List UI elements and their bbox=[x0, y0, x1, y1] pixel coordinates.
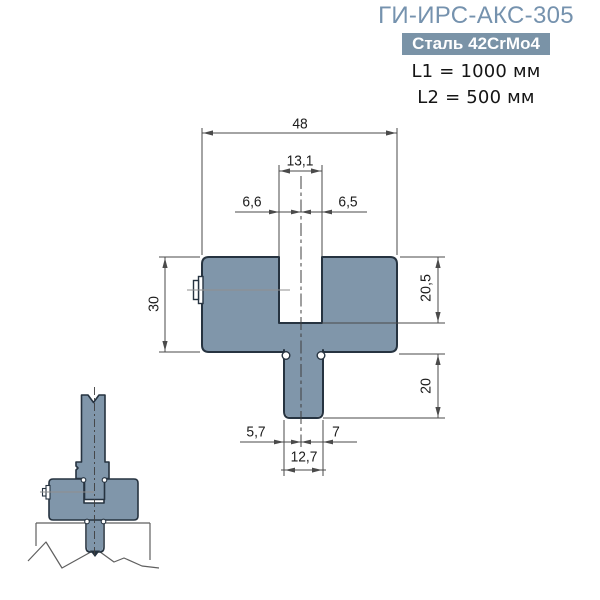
adapter-body bbox=[202, 257, 397, 352]
header: ГИ-ИРС-АКС-305 Сталь 42CrMo4 L1 = 1000 м… bbox=[376, 2, 576, 111]
dim-tang-height-label: 20 bbox=[418, 378, 435, 394]
dim-body-height-label: 30 bbox=[146, 296, 163, 312]
dim-tang-width-label: 12,7 bbox=[291, 449, 318, 466]
thumb-relief-notch bbox=[101, 519, 106, 524]
thumb-relief-notch bbox=[85, 519, 90, 524]
dim-center-to-slot-right-label: 6,5 bbox=[338, 194, 357, 211]
thumb-stem-tip bbox=[90, 551, 100, 558]
dim-slot-width-label: 13,1 bbox=[287, 153, 314, 170]
dim-tang-left-label: 5,7 bbox=[246, 424, 265, 441]
dim-slot-depth-label: 20,5 bbox=[418, 274, 435, 302]
dim-total-width-label: 48 bbox=[292, 116, 307, 133]
assembly-thumbnail bbox=[28, 387, 159, 568]
thumb-collar-notch bbox=[81, 478, 86, 483]
relief-notch-right bbox=[317, 352, 325, 360]
page-title: ГИ-ИРС-АКС-305 bbox=[378, 2, 574, 30]
thumb-collar-notch bbox=[102, 478, 107, 483]
dim-center-to-slot-left-label: 6,6 bbox=[242, 194, 261, 211]
material-badge: Сталь 42CrMo4 bbox=[402, 33, 550, 55]
relief-notch-left bbox=[282, 352, 290, 360]
dim-tang-right-label: 7 bbox=[332, 424, 340, 441]
main-view bbox=[159, 128, 445, 476]
length-l1: L1 = 1000 мм bbox=[411, 59, 540, 85]
adapter-tang-fill bbox=[285, 348, 322, 417]
drawing-sheet: ГИ-ИРС-АКС-305 Сталь 42CrMo4 L1 = 1000 м… bbox=[0, 0, 600, 600]
length-l2: L2 = 500 мм bbox=[417, 85, 534, 111]
